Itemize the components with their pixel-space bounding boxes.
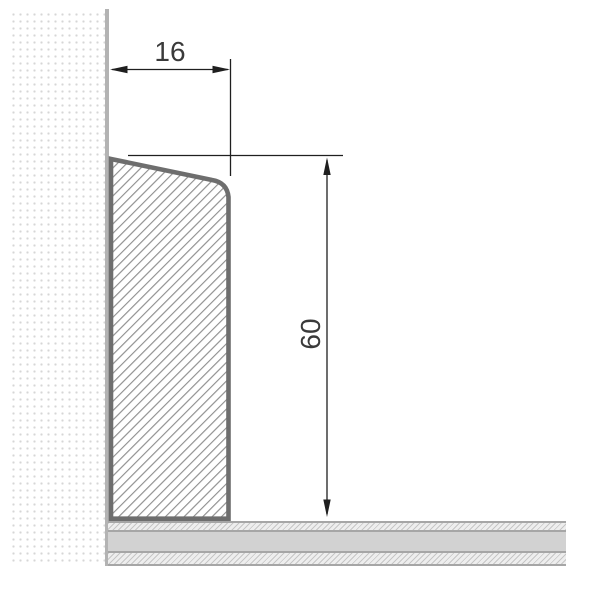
width-dimension-value: 16	[154, 36, 185, 67]
arrow-right-icon	[213, 66, 231, 73]
drawing-overlay: 16 60	[0, 0, 604, 604]
arrow-up-icon	[323, 158, 330, 176]
technical-drawing-canvas: 16 60	[0, 0, 604, 604]
arrow-left-icon	[110, 66, 128, 73]
skirting-board-outline	[111, 159, 229, 519]
skirting-board-profile	[111, 159, 229, 519]
height-dimension-value: 60	[295, 318, 326, 349]
arrow-down-icon	[323, 500, 330, 518]
